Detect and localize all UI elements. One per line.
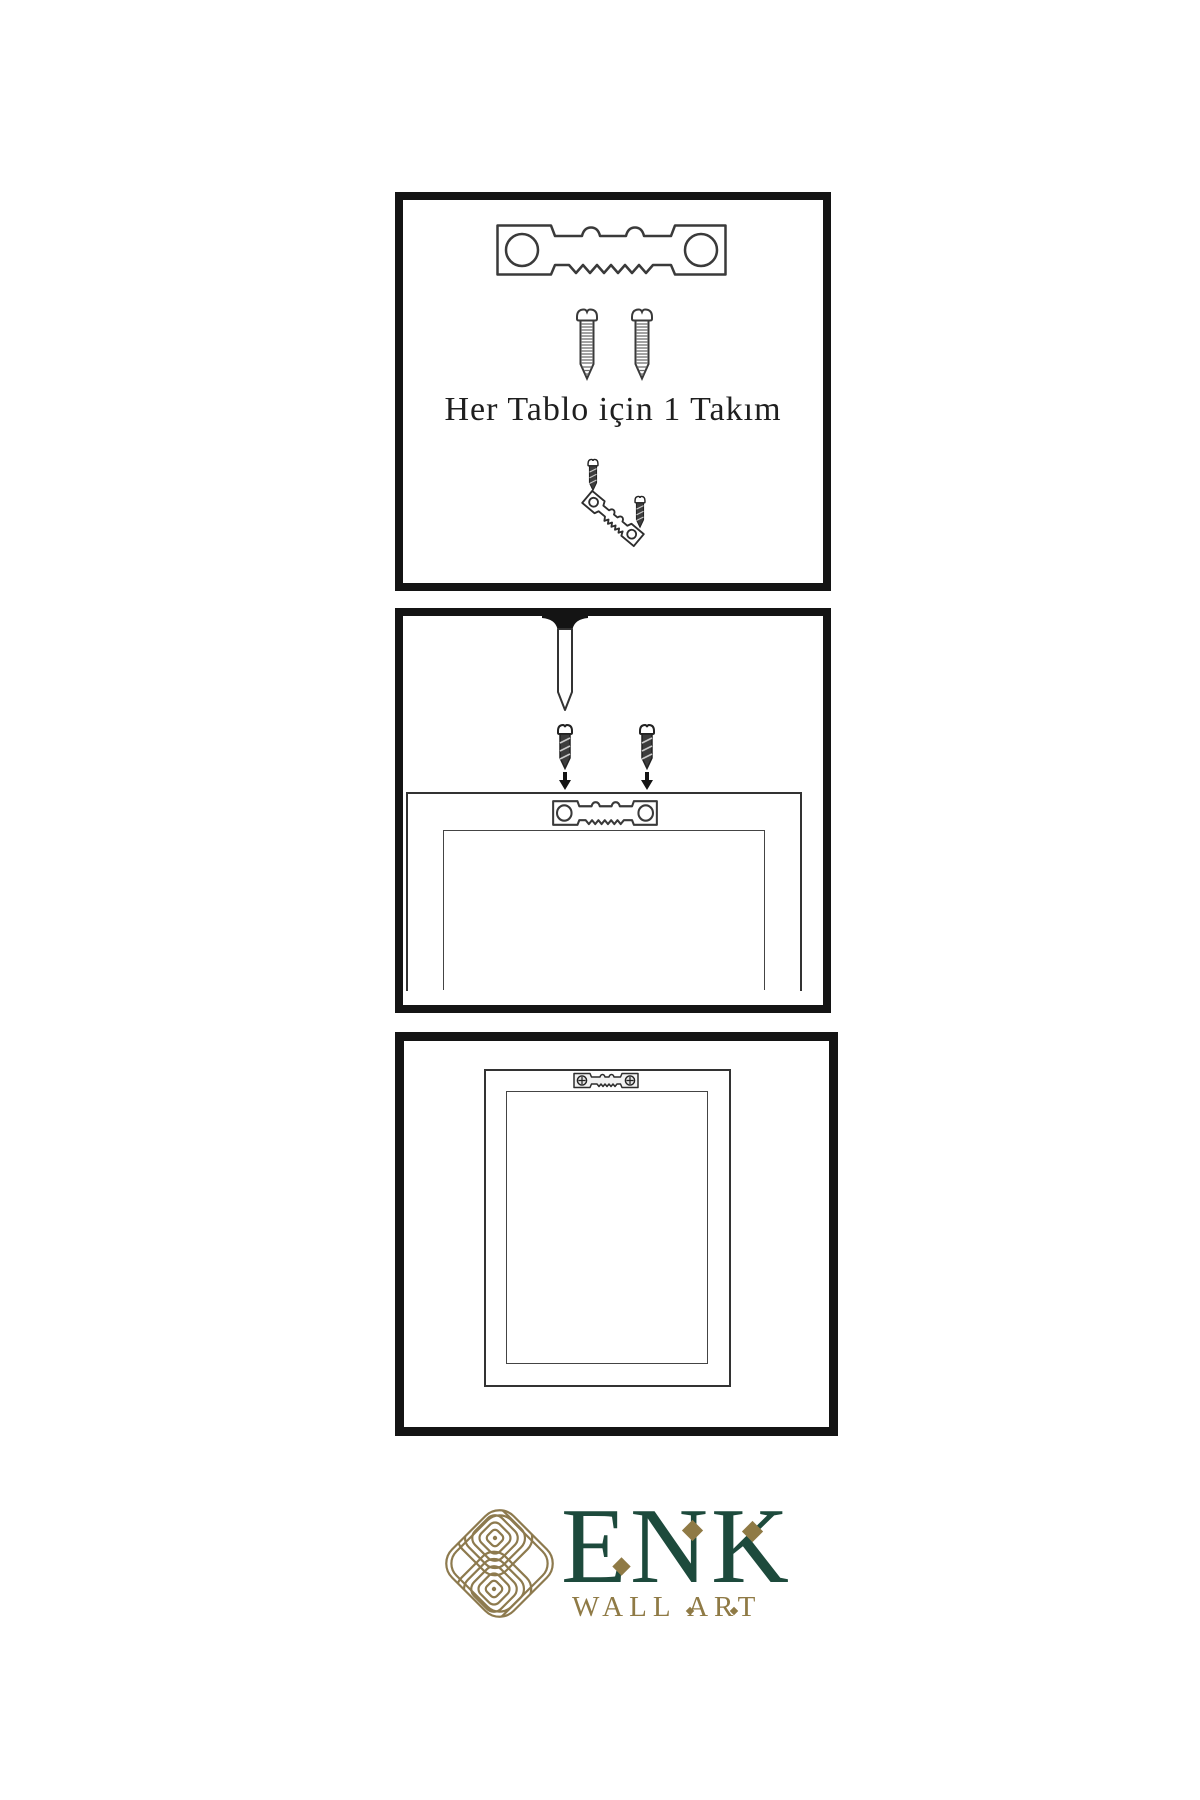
interlocking-knot-icon (437, 1502, 562, 1625)
brand-logo: ENK WALL ART (0, 0, 1200, 1800)
brand-name: ENK (561, 1493, 792, 1601)
instruction-sheet: Her Tablo için 1 Takım (0, 0, 1200, 1800)
